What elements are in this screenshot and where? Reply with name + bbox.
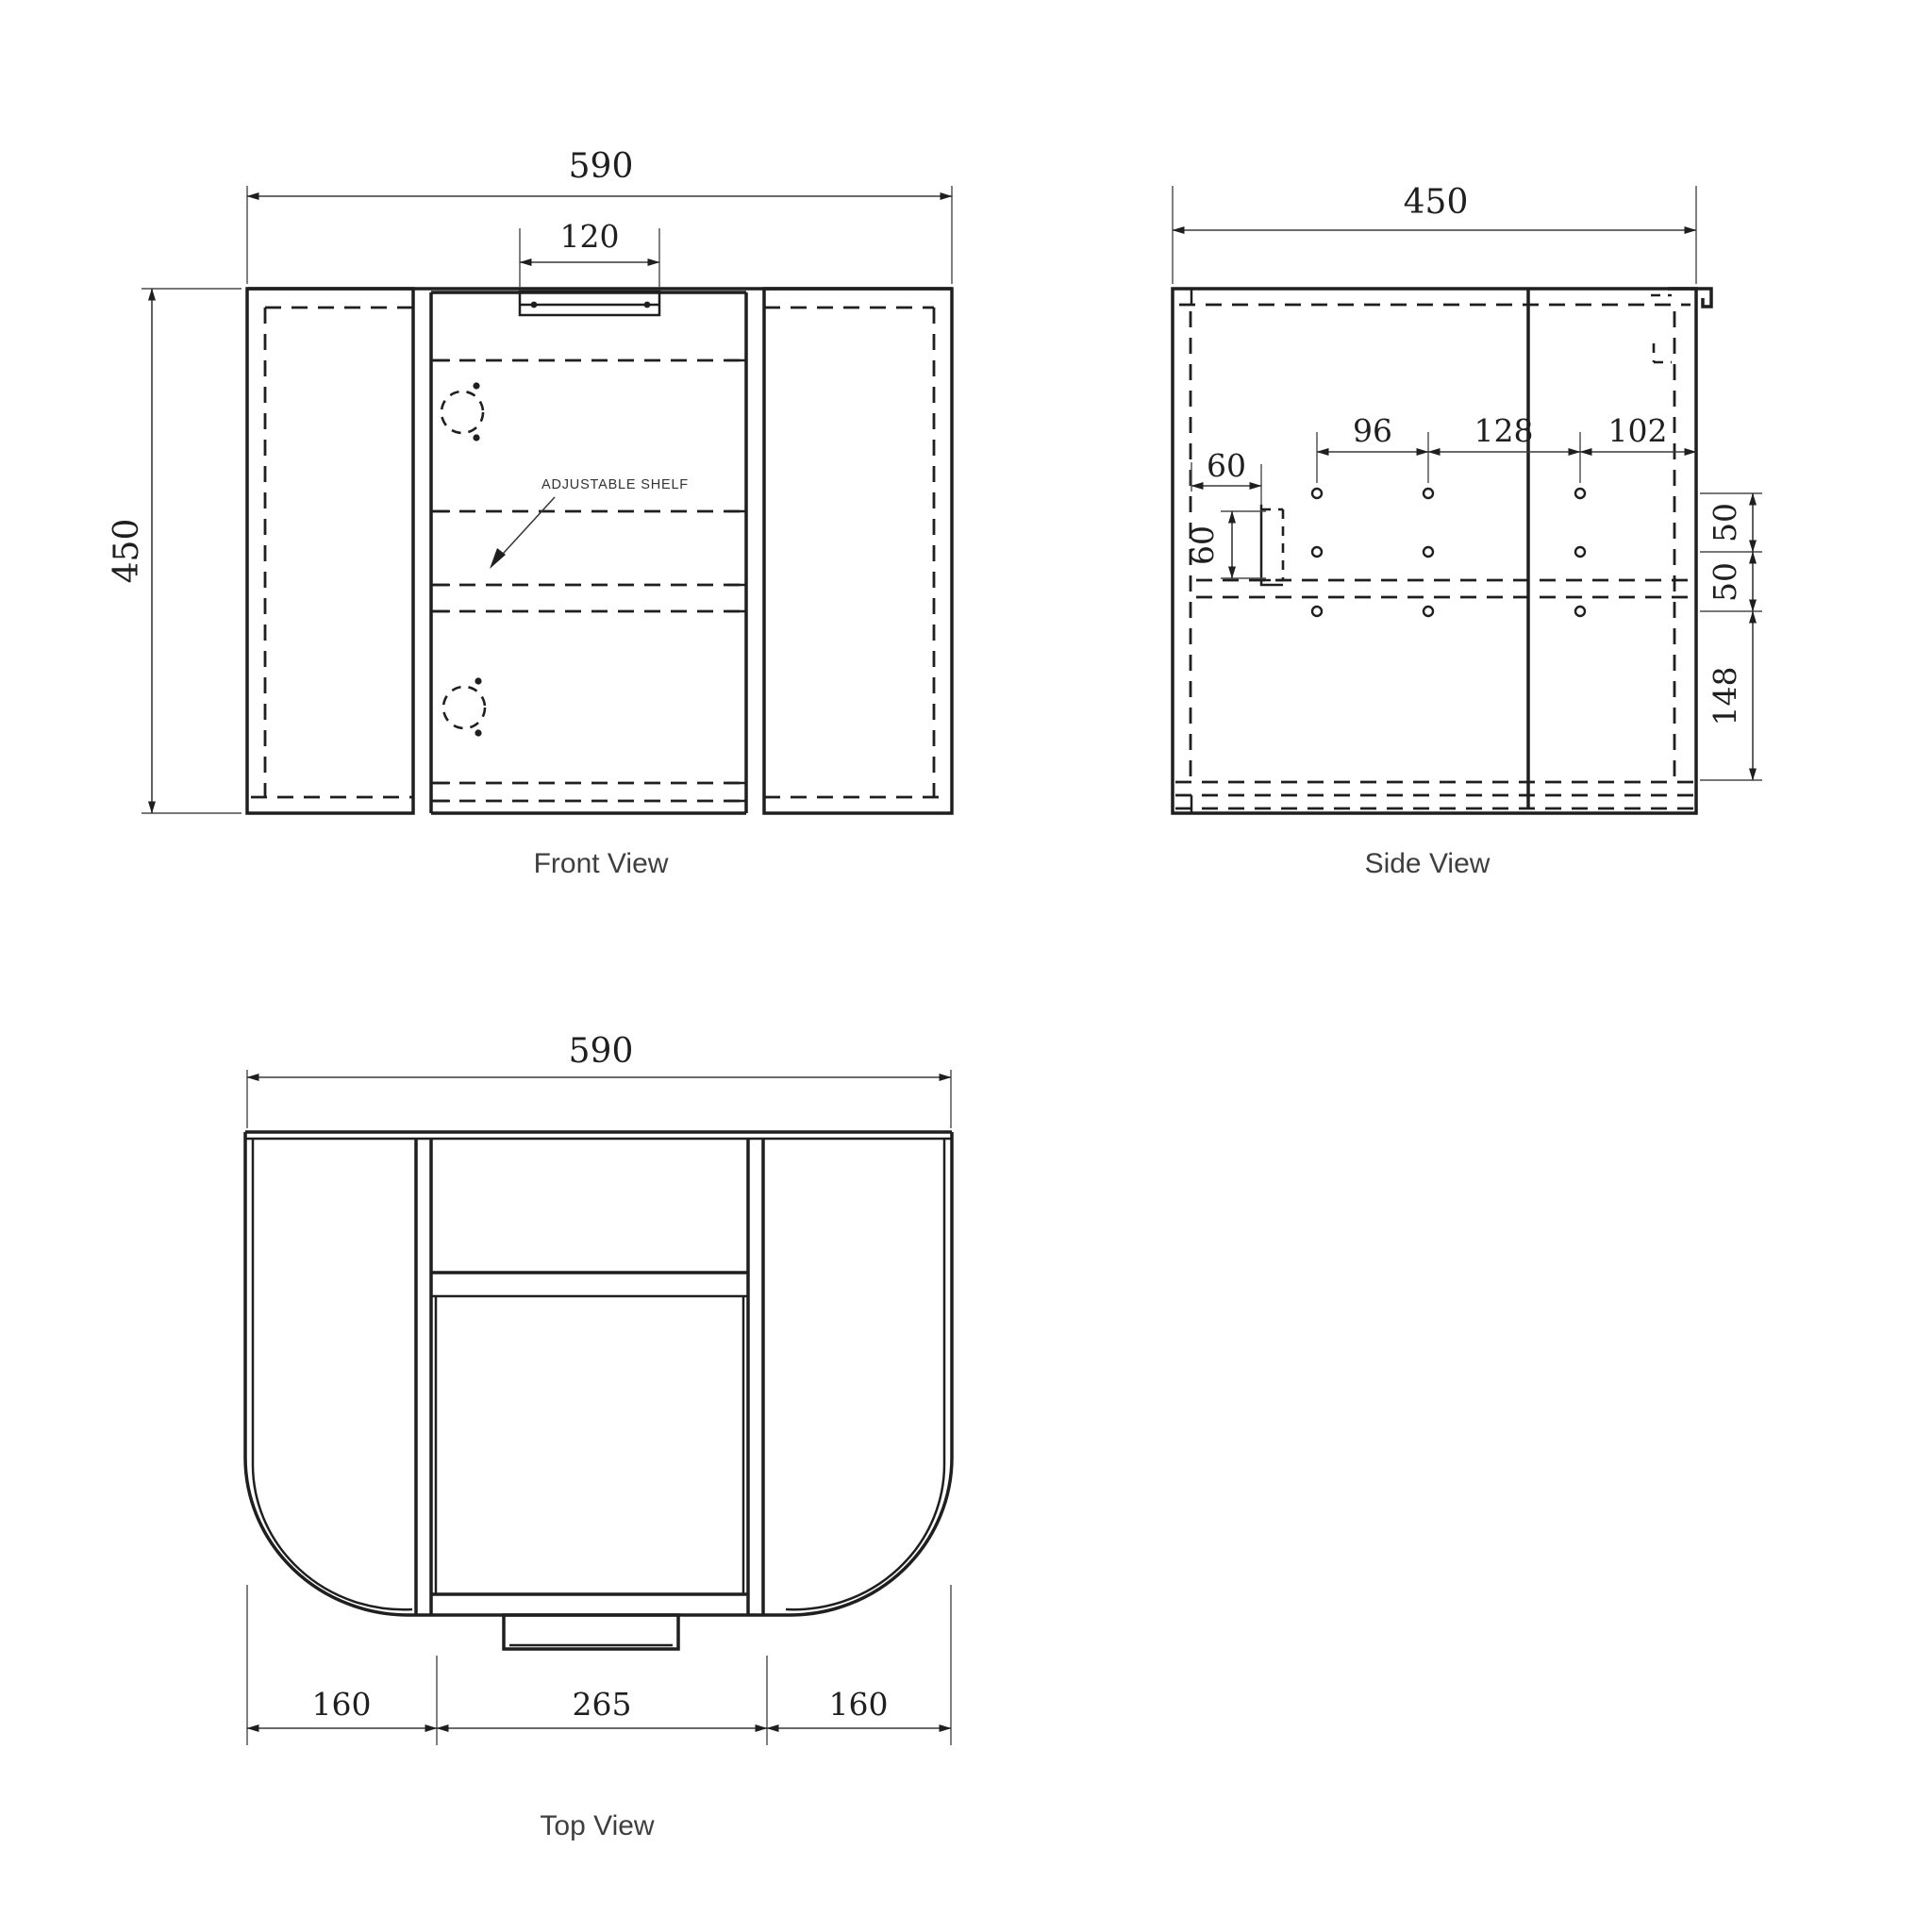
side-view-caption: Side View: [1365, 848, 1491, 879]
technical-drawing-page: ADJUSTABLE SHELF 590 120 450 Front View: [0, 0, 1932, 1932]
side-bottom-hidden: [1175, 782, 1693, 813]
front-handle-value: 120: [560, 218, 620, 255]
front-dim-handle: 120: [520, 218, 659, 288]
top-right-section-value: 160: [829, 1686, 889, 1723]
adjustable-shelf-label: ADJUSTABLE SHELF: [541, 477, 689, 492]
top-center-section-value: 265: [573, 1686, 632, 1723]
leader-arrowhead: [490, 548, 506, 569]
side-hole-spacing-b: 128: [1474, 412, 1534, 449]
side-mount-bracket: [1261, 505, 1283, 585]
front-dim-height: 450: [108, 289, 241, 813]
front-width-value: 590: [569, 147, 634, 186]
front-hinge-bottom: [443, 677, 485, 736]
top-width-value: 590: [569, 1032, 634, 1071]
side-bracket-offset-value: 60: [1207, 447, 1246, 484]
side-dim-hole-columns: 96 128 102: [1317, 412, 1696, 483]
front-hinge-top: [441, 382, 483, 441]
front-left-door: [247, 289, 413, 813]
top-front-edge: [408, 1615, 790, 1649]
top-view: 590 160 265 160 Top View: [245, 1032, 952, 1841]
side-dim-depth: 450: [1173, 183, 1696, 284]
front-door-hidden-lines: [251, 308, 948, 797]
side-depth-value: 450: [1404, 183, 1469, 222]
side-outline: [1173, 289, 1696, 813]
side-hole-gap-top: 50: [1707, 503, 1743, 542]
front-view-caption: Front View: [534, 848, 669, 879]
side-view: 450 96 128 102 60 60: [1173, 183, 1762, 879]
top-left-section-value: 160: [312, 1686, 372, 1723]
top-dim-width: 590: [247, 1032, 951, 1128]
front-view: ADJUSTABLE SHELF 590 120 450 Front View: [108, 147, 952, 879]
side-hole-gap-bottom: 50: [1707, 562, 1743, 602]
side-hole-spacing-c: 102: [1608, 412, 1668, 449]
top-outer-walls: [245, 1132, 952, 1615]
front-height-value: 450: [108, 519, 146, 584]
top-dim-sections: 160 265 160: [247, 1585, 951, 1745]
front-right-door: [764, 289, 952, 813]
front-dim-width: 590: [247, 147, 952, 284]
front-shelf-annotation: ADJUSTABLE SHELF: [490, 477, 689, 569]
side-dim-bracket-offset: 60: [1191, 447, 1261, 505]
top-interior: [431, 1273, 748, 1594]
top-dividers: [416, 1139, 763, 1615]
top-handle: [504, 1615, 678, 1649]
side-dim-hole-rows: 50 50 148: [1700, 493, 1762, 780]
side-bracket-size-value: 60: [1184, 525, 1221, 565]
side-hole-spacing-a: 96: [1353, 412, 1392, 449]
side-bottom-clearance: 148: [1707, 667, 1743, 726]
side-dim-bracket-size: 60: [1184, 511, 1266, 578]
front-handle-recess: [520, 291, 659, 315]
top-view-caption: Top View: [540, 1810, 655, 1841]
cabinet-drawing: ADJUSTABLE SHELF 590 120 450 Front View: [0, 0, 1932, 1932]
